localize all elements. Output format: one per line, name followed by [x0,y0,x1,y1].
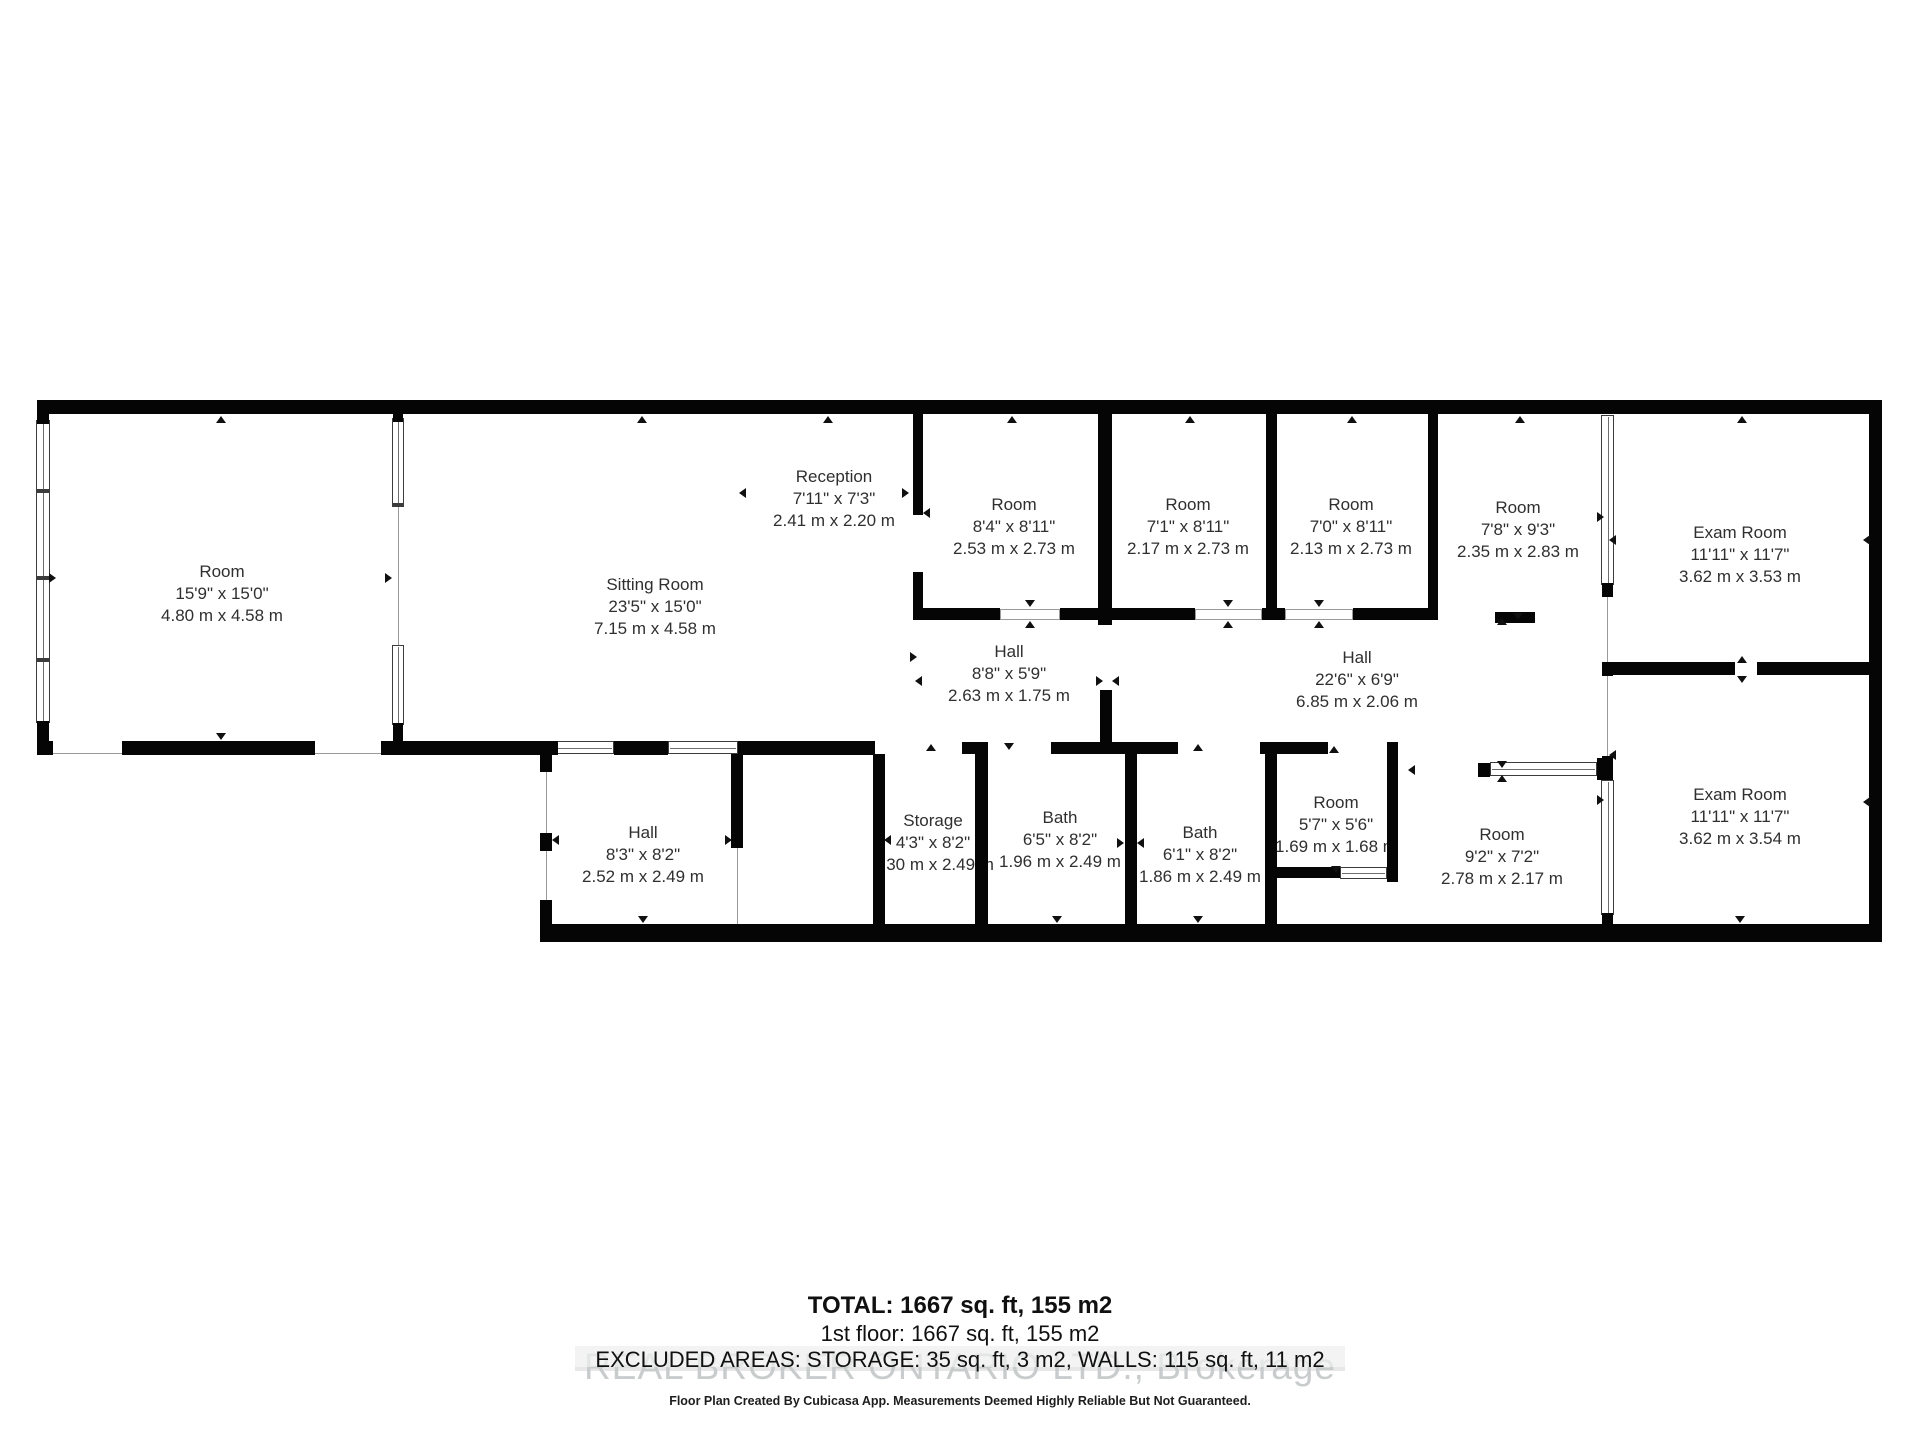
room-label-metric: 4.80 m x 4.58 m [161,605,283,627]
door-direction-arrow-icon [1096,676,1103,686]
room-label-metric: 2.63 m x 1.75 m [948,685,1070,707]
room-label-room-16: Room9'2" x 7'2"2.78 m x 2.17 m [1441,824,1563,890]
door-direction-arrow-icon [1408,765,1415,775]
door-direction-arrow-icon [1112,676,1119,686]
wall-segment [1602,913,1613,930]
door-direction-arrow-icon [637,416,647,423]
door-direction-arrow-icon [1025,621,1035,628]
room-label-name: Sitting Room [594,574,716,596]
window [668,741,738,754]
door-direction-arrow-icon [1497,775,1507,782]
room-label-name: Room [161,561,283,583]
room-label-room-0: Room15'9" x 15'0"4.80 m x 4.58 m [161,561,283,627]
door-direction-arrow-icon [1223,621,1233,628]
room-label-imperial: 6'1" x 8'2" [1139,844,1261,866]
opening-threshold-line [398,506,399,645]
room-label-name: Hall [948,641,1070,663]
room-label-metric: 3.62 m x 3.54 m [1679,828,1801,850]
room-label-imperial: 11'11" x 11'7" [1679,806,1801,828]
wall-segment [37,741,53,755]
room-label-name: Room [1290,494,1412,516]
door-direction-arrow-icon [1193,916,1203,923]
room-label-metric: 7.15 m x 4.58 m [594,618,716,640]
wall-segment [122,741,315,755]
wall-segment [1387,867,1398,882]
room-label-sitting-room-1: Sitting Room23'5" x 15'0"7.15 m x 4.58 m [594,574,716,640]
first-floor-area-text: 1st floor: 1667 sq. ft, 155 m2 [821,1321,1100,1347]
wall-segment [37,721,49,743]
room-label-metric: 6.85 m x 2.06 m [1296,691,1418,713]
wall-segment [1387,754,1398,882]
door-direction-arrow-icon [1737,416,1747,423]
door-direction-arrow-icon [1004,743,1014,750]
room-label-imperial: 22'6" x 6'9" [1296,669,1418,691]
wall-segment [37,414,49,424]
door-direction-arrow-icon [1737,656,1747,663]
door-direction-arrow-icon [884,835,891,845]
room-label-name: Exam Room [1679,784,1801,806]
room-label-room-6: Room7'8" x 9'3"2.35 m x 2.83 m [1457,497,1579,563]
floor-plan: Room15'9" x 15'0"4.80 m x 4.58 mSitting … [0,0,1920,1440]
wall-segment [1265,742,1277,926]
room-label-imperial: 6'5" x 8'2" [999,829,1121,851]
window-mullion [36,576,50,580]
room-label-imperial: 15'9" x 15'0" [161,583,283,605]
room-label-bath-13: Bath6'5" x 8'2"1.96 m x 2.49 m [999,807,1121,873]
wall-segment [913,572,923,608]
wall-segment [540,833,552,851]
room-label-hall-11: Hall8'3" x 8'2"2.52 m x 2.49 m [582,822,704,888]
room-label-name: Room [1127,494,1249,516]
door-direction-arrow-icon [1314,621,1324,628]
room-label-reception-2: Reception7'11" x 7'3"2.41 m x 2.20 m [773,466,895,532]
room-label-imperial: 8'8" x 5'9" [948,663,1070,685]
door-direction-arrow-icon [1515,416,1525,423]
wall-segment [1353,608,1435,620]
opening-threshold-line [737,848,738,924]
wall-segment [1266,414,1277,620]
door-direction-arrow-icon [1347,416,1357,423]
room-label-bath-14: Bath6'1" x 8'2"1.86 m x 2.49 m [1139,822,1261,888]
wall-segment [1387,742,1398,754]
door-direction-arrow-icon [1497,761,1507,768]
door-direction-arrow-icon [1497,618,1507,625]
room-label-imperial: 5'7" x 5'6" [1275,814,1397,836]
door-direction-arrow-icon [385,573,392,583]
door-direction-arrow-icon [1137,838,1144,848]
door-direction-arrow-icon [725,835,732,845]
door-direction-arrow-icon [1193,744,1203,751]
total-area-text: TOTAL: 1667 sq. ft, 155 m2 [808,1292,1113,1320]
door-direction-arrow-icon [1735,916,1745,923]
door-direction-arrow-icon [1329,746,1339,753]
door-direction-arrow-icon [910,652,917,662]
room-label-metric: 2.53 m x 2.73 m [953,538,1075,560]
door-direction-arrow-icon [915,676,922,686]
wall-segment [1478,763,1490,777]
door-direction-arrow-icon [739,488,746,498]
door-direction-arrow-icon [1314,600,1324,607]
room-label-room-3: Room8'4" x 8'11"2.53 m x 2.73 m [953,494,1075,560]
room-label-imperial: 23'5" x 15'0" [594,596,716,618]
room-label-name: Bath [1139,822,1261,844]
window [1601,415,1614,585]
door-direction-arrow-icon [1609,750,1616,760]
door-opening [1285,609,1353,620]
room-label-metric: 1.86 m x 2.49 m [1139,866,1261,888]
room-label-imperial: 8'4" x 8'11" [953,516,1075,538]
wall-segment [540,924,1882,942]
room-label-metric: 3.62 m x 3.53 m [1679,566,1801,588]
room-label-metric: 1.96 m x 2.49 m [999,851,1121,873]
opening-threshold-line [1607,597,1608,662]
wall-segment [962,742,988,754]
door-direction-arrow-icon [1863,535,1870,545]
room-label-metric: 2.52 m x 2.49 m [582,866,704,888]
wall-segment [731,754,743,848]
room-label-hall-8: Hall8'8" x 5'9"2.63 m x 1.75 m [948,641,1070,707]
wall-segment [1262,608,1285,620]
room-label-metric: 1.69 m x 1.68 m [1275,836,1397,858]
room-label-name: Reception [773,466,895,488]
room-label-metric: 2.17 m x 2.73 m [1127,538,1249,560]
door-opening [1195,609,1262,620]
wall-segment [975,754,988,926]
wall-segment [1869,400,1882,942]
wall-segment [1051,742,1178,754]
door-direction-arrow-icon [1863,797,1870,807]
door-direction-arrow-icon [1737,676,1747,683]
wall-segment [738,741,875,755]
room-label-imperial: 7'1" x 8'11" [1127,516,1249,538]
door-direction-arrow-icon [1025,600,1035,607]
wall-segment [913,414,923,515]
room-label-imperial: 7'11" x 7'3" [773,488,895,510]
door-direction-arrow-icon [216,416,226,423]
door-direction-arrow-icon [1223,600,1233,607]
window [1340,867,1387,879]
door-direction-arrow-icon [1052,916,1062,923]
room-label-imperial: 9'2" x 7'2" [1441,846,1563,868]
wall-segment [1098,414,1112,625]
door-direction-arrow-icon [1185,416,1195,423]
room-label-metric: 2.78 m x 2.17 m [1441,868,1563,890]
window [392,418,404,506]
door-direction-arrow-icon [552,835,559,845]
wall-segment [1060,608,1195,620]
door-direction-arrow-icon [1331,866,1341,873]
room-label-name: Room [1275,792,1397,814]
room-label-room-5: Room7'0" x 8'11"2.13 m x 2.73 m [1290,494,1412,560]
room-label-metric: 2.13 m x 2.73 m [1290,538,1412,560]
wall-segment [614,741,668,755]
room-label-metric: 2.35 m x 2.83 m [1457,541,1579,563]
opening-threshold-line [1607,676,1608,756]
room-label-room-15: Room5'7" x 5'6"1.69 m x 1.68 m [1275,792,1397,858]
wall-segment [393,723,403,741]
disclaimer-text: Floor Plan Created By Cubicasa App. Meas… [669,1394,1251,1408]
door-direction-arrow-icon [1117,838,1124,848]
excluded-areas-text: EXCLUDED AREAS: STORAGE: 35 sq. ft, 3 m2… [595,1347,1324,1373]
room-label-name: Room [1457,497,1579,519]
wall-segment [1613,662,1735,675]
room-label-name: Exam Room [1679,522,1801,544]
room-label-imperial: 7'8" x 9'3" [1457,519,1579,541]
room-label-name: Bath [999,807,1121,829]
wall-segment [540,900,552,926]
wall-segment [1428,414,1438,620]
wall-segment [1125,754,1137,926]
wall-segment [1602,662,1613,676]
door-direction-arrow-icon [923,508,930,518]
door-direction-arrow-icon [1597,512,1604,522]
door-direction-arrow-icon [49,573,56,583]
door-direction-arrow-icon [1597,795,1604,805]
opening-threshold-line [315,753,381,754]
door-direction-arrow-icon [1609,535,1616,545]
door-direction-arrow-icon [902,488,909,498]
room-label-hall-9: Hall22'6" x 6'9"6.85 m x 2.06 m [1296,647,1418,713]
room-label-name: Room [953,494,1075,516]
room-label-name: Hall [1296,647,1418,669]
wall-segment [540,754,552,772]
room-label-room-4: Room7'1" x 8'11"2.17 m x 2.73 m [1127,494,1249,560]
room-label-imperial: 11'11" x 11'7" [1679,544,1801,566]
window [36,420,50,723]
window [556,741,614,754]
room-label-name: Hall [582,822,704,844]
window-mullion [36,489,50,493]
room-label-metric: 2.41 m x 2.20 m [773,510,895,532]
window-mullion [36,658,50,662]
wall-segment [393,414,403,422]
wall-segment [37,400,1882,414]
window-mullion [392,503,404,507]
room-label-exam-room-10: Exam Room11'11" x 11'7"3.62 m x 3.54 m [1679,784,1801,850]
wall-segment [1757,662,1870,675]
door-direction-arrow-icon [823,416,833,423]
door-opening [1000,609,1060,620]
opening-threshold-line [53,753,122,754]
wall-segment [381,741,558,755]
room-label-name: Room [1441,824,1563,846]
room-label-imperial: 8'3" x 8'2" [582,844,704,866]
door-direction-arrow-icon [1513,613,1523,620]
door-direction-arrow-icon [216,733,226,740]
wall-segment [1602,583,1613,597]
wall-segment [913,608,1000,620]
window [392,645,404,725]
room-label-exam-room-7: Exam Room11'11" x 11'7"3.62 m x 3.53 m [1679,522,1801,588]
wall-segment [1100,690,1112,742]
door-direction-arrow-icon [638,916,648,923]
room-label-imperial: 7'0" x 8'11" [1290,516,1412,538]
door-direction-arrow-icon [926,744,936,751]
door-direction-arrow-icon [1007,416,1017,423]
